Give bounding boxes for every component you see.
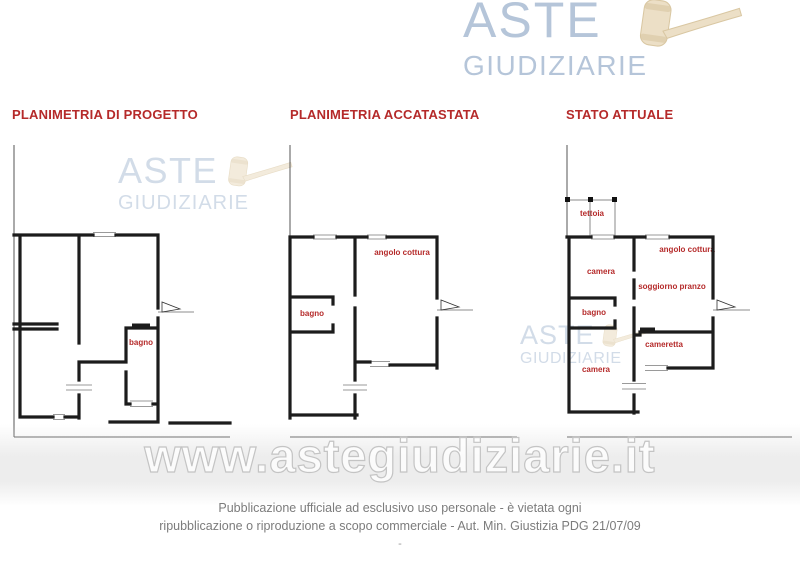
plan2-title: PLANIMETRIA ACCATASTATA xyxy=(290,107,479,122)
aste-giudiziarie-logo: ASTE GIUDIZIARIE xyxy=(463,0,763,80)
document-page: ASTE GIUDIZIARIE ASTE GIUDIZIARIE ASTE xyxy=(0,0,800,565)
plan3-title: STATO ATTUALE xyxy=(566,107,673,122)
footer-line2: ripubblicazione o riproduzione a scopo c… xyxy=(0,517,800,535)
footer-line1: Pubblicazione ufficiale ad esclusivo uso… xyxy=(0,499,800,517)
floorplan-accatastata: angolo cottura bagno xyxy=(285,140,525,445)
footer-notice: Pubblicazione ufficiale ad esclusivo uso… xyxy=(0,499,800,535)
footer-dash: - xyxy=(0,538,800,550)
plan1-title: PLANIMETRIA DI PROGETTO xyxy=(12,107,198,122)
floorplan-stato-attuale-drawing xyxy=(560,140,800,445)
logo-word1: ASTE xyxy=(463,0,602,46)
floorplan-stato-attuale: tettoia camera angolo cottura soggiorno … xyxy=(560,140,800,445)
floorplan-accatastata-drawing xyxy=(285,140,525,445)
floorplan-progetto-drawing xyxy=(8,140,238,445)
floorplan-progetto: bagno xyxy=(8,140,238,445)
